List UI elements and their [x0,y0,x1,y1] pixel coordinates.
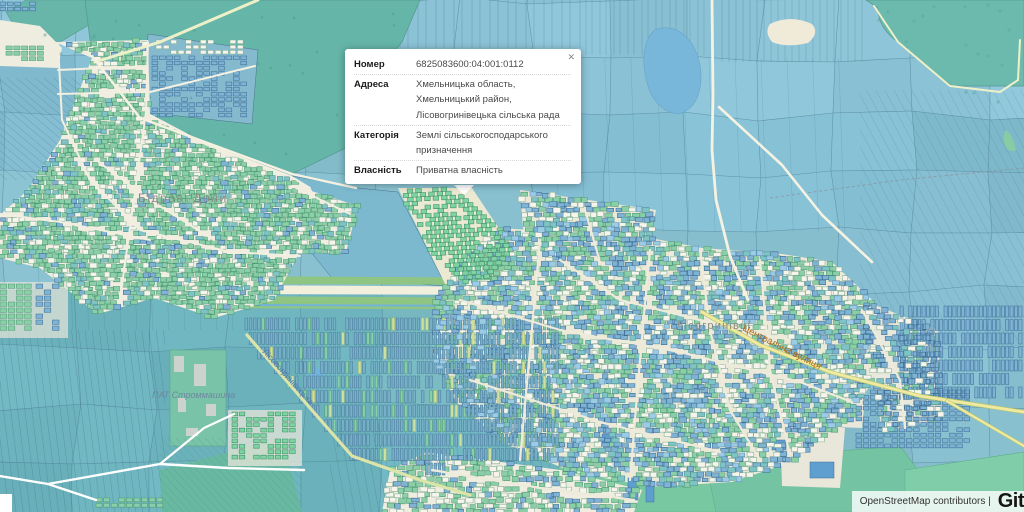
svg-text:ПАТ Строммашина: ПАТ Строммашина [152,390,235,400]
svg-text:Лісогринівці: Лісогринівці [676,320,751,332]
svg-text:Бідрові Доли: Бідрові Доли [138,191,228,205]
